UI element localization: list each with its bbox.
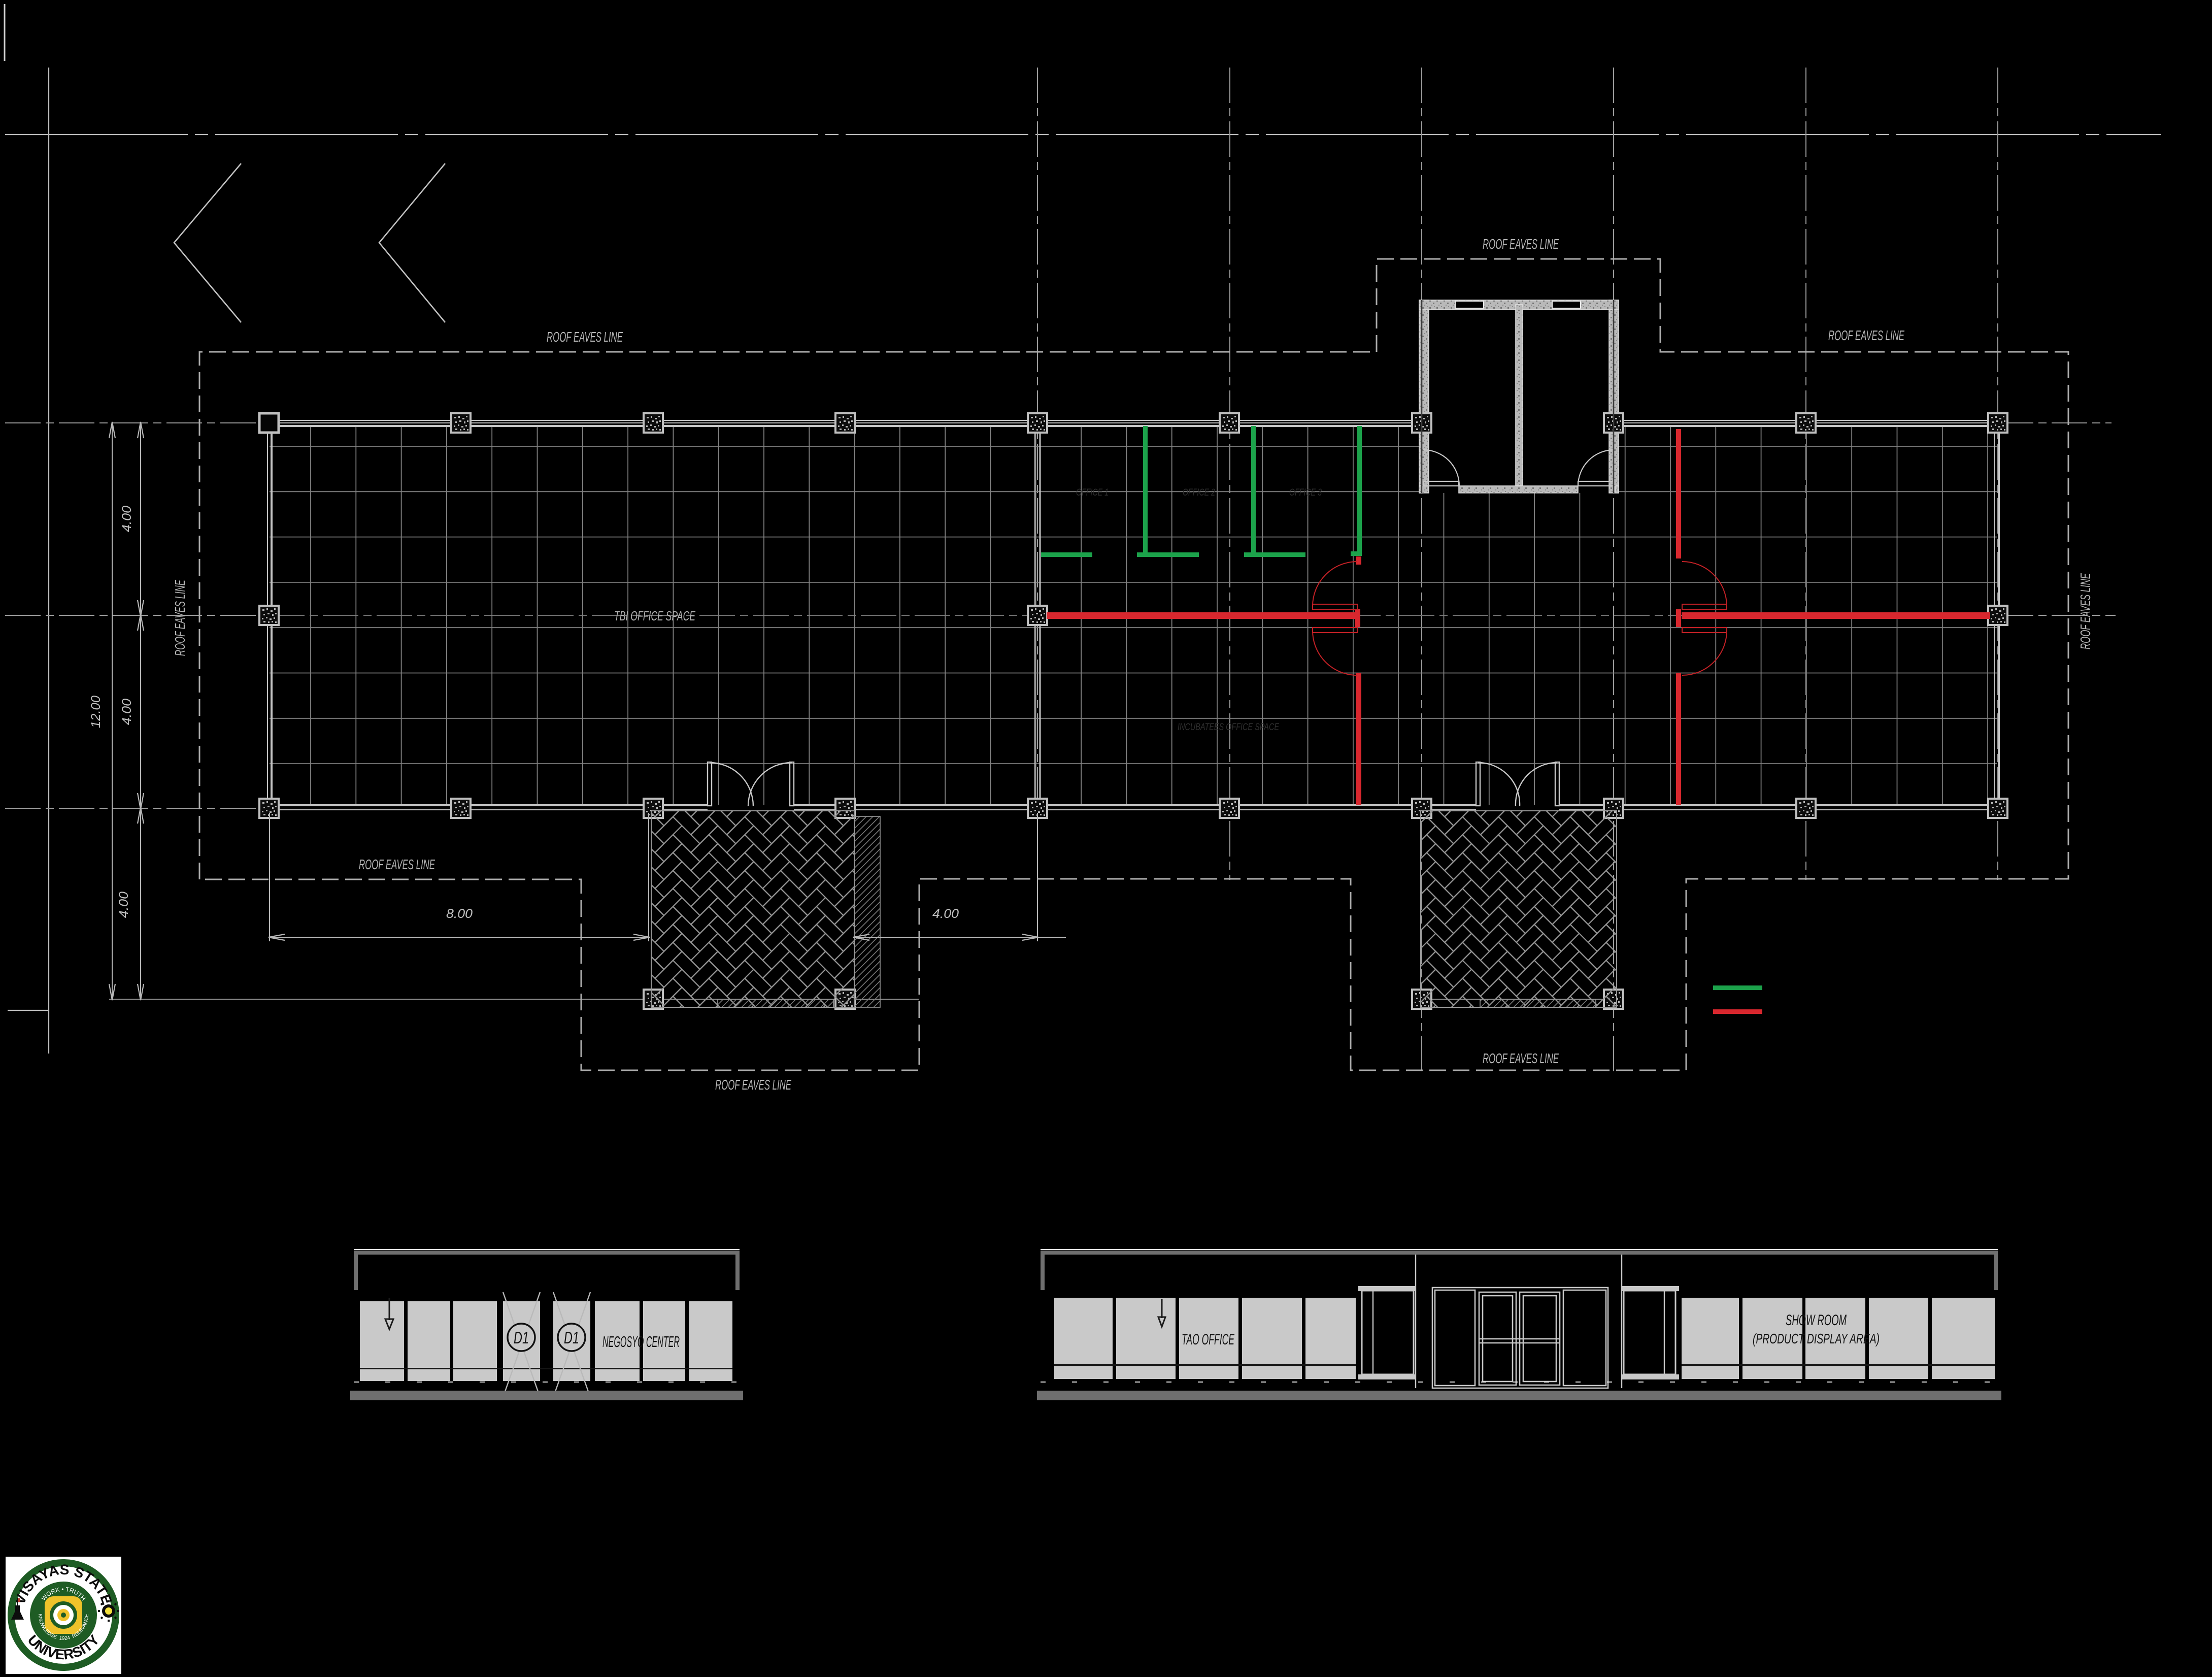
svg-text:D1: D1 [564,1328,579,1347]
svg-text:OFFICE 2: OFFICE 2 [1183,487,1215,498]
svg-text:ROOF EAVES LINE: ROOF EAVES LINE [715,1077,791,1093]
svg-text:4.00: 4.00 [120,699,134,725]
svg-text:ROOF EAVES LINE: ROOF EAVES LINE [359,857,435,872]
svg-text:4.00: 4.00 [932,907,959,921]
svg-text:OFFICE 1: OFFICE 1 [1076,487,1109,498]
svg-text:4.00: 4.00 [117,892,131,918]
svg-text:12.00: 12.00 [89,696,103,728]
svg-text:D1: D1 [514,1328,529,1347]
svg-text:ROOF EAVES LINE: ROOF EAVES LINE [172,580,188,656]
svg-text:TBI OFFICE SPACE: TBI OFFICE SPACE [614,608,695,623]
svg-text:INCUBATEES OFFICE SPACE: INCUBATEES OFFICE SPACE [1178,722,1279,733]
svg-text:ROOF EAVES LINE: ROOF EAVES LINE [1483,236,1559,252]
svg-text:4.00: 4.00 [120,506,134,532]
svg-text:TAO OFFICE: TAO OFFICE [1182,1331,1235,1348]
svg-text:ROOF EAVES LINE: ROOF EAVES LINE [547,329,623,345]
svg-text:8.00: 8.00 [446,907,473,921]
svg-text:SHOW ROOM: SHOW ROOM [1786,1312,1847,1329]
svg-text:ROOF EAVES LINE: ROOF EAVES LINE [2077,573,2093,649]
svg-text:OFFICE 3: OFFICE 3 [1289,487,1322,498]
svg-text:ROOF EAVES LINE: ROOF EAVES LINE [1828,327,1904,343]
svg-text:(PRODUCT DISPLAY AREA): (PRODUCT DISPLAY AREA) [1753,1331,1880,1346]
svg-text:NEGOSYO CENTER: NEGOSYO CENTER [602,1333,680,1351]
svg-text:ROOF EAVES LINE: ROOF EAVES LINE [1483,1050,1559,1066]
